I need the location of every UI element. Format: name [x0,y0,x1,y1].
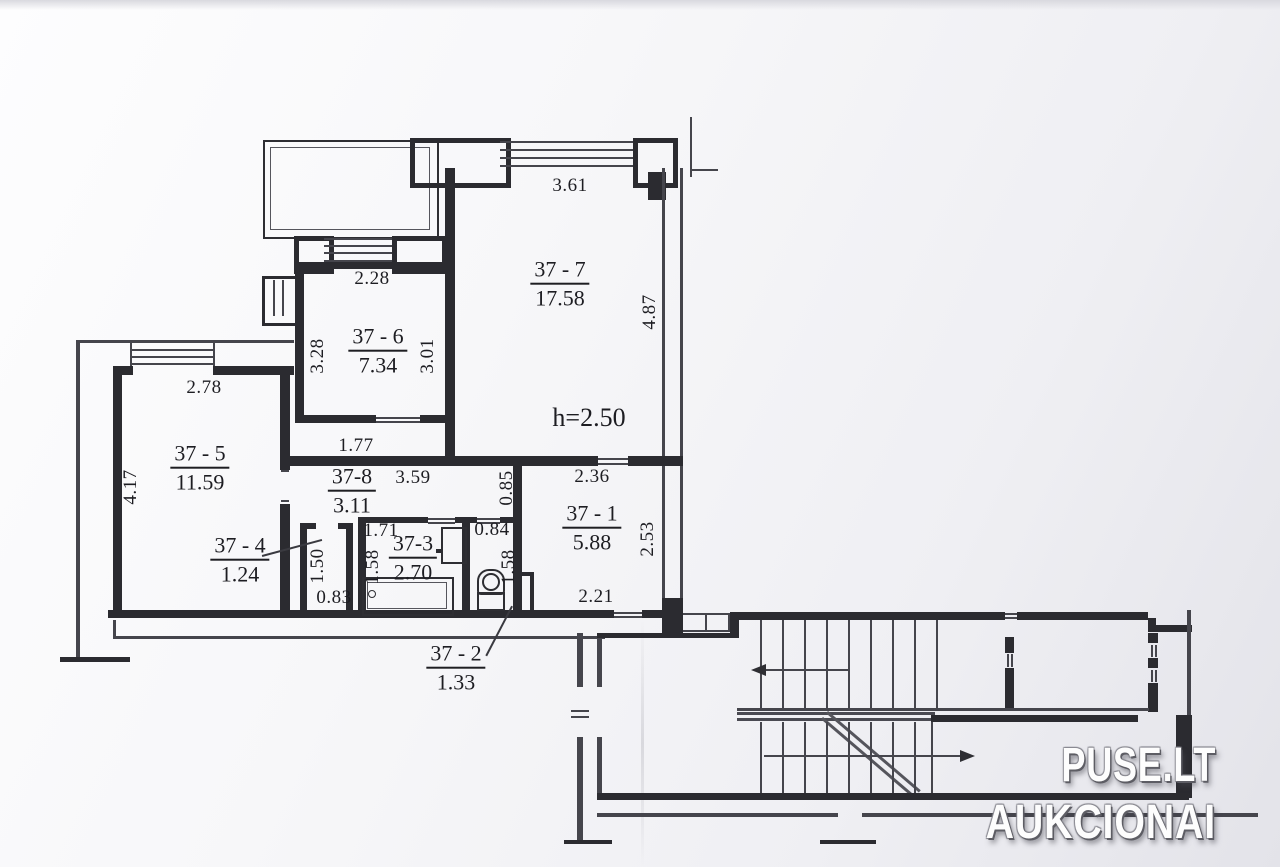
window-lines [324,245,392,247]
landing-divider [1005,637,1014,653]
room-label-37-2: 37 - 2 1.33 [426,641,485,696]
room1-notch [530,572,534,612]
room-id: 37 - 5 [170,441,229,469]
dim-label: 1.77 [338,435,373,457]
stair-tread [936,620,938,709]
dim-label: 4.87 [639,294,661,329]
room-area: 1.33 [426,669,485,695]
room-label-37-8: 37-8 3.11 [328,464,376,519]
stair-top-wall [735,612,1005,620]
flight-divider-line [737,708,1149,711]
stair-tread [804,620,806,709]
room-label-37-1: 37 - 1 5.88 [562,501,621,556]
watermark-line1: PUSE.LT [1061,742,1216,790]
door-opening-lines [428,522,455,524]
toilet-tank [477,592,505,611]
window-lines [1011,654,1013,667]
divider-wall [1148,633,1158,643]
door-opening-lines [376,417,420,419]
door-opening-lines [1005,617,1017,619]
wall-foot [564,840,612,844]
opening-lines [614,612,642,614]
stair-tread [892,620,894,709]
stair-tread [848,620,850,709]
stair-tread [804,722,806,793]
vent-shaft-line [273,280,275,316]
stair-tread [826,722,828,793]
dim-label: 0.84 [474,519,509,541]
entrance-jamb [728,613,730,632]
wall-step [1148,625,1192,632]
stair-break-line [821,717,916,799]
landing-divider [1005,668,1014,708]
room-id: 37 - 2 [426,641,485,669]
window-lines [500,149,633,151]
room-label-37-4: 37 - 4 1.24 [210,533,269,588]
stair-tread [892,722,894,793]
bathtub-inner [367,582,447,609]
door-opening-lines [598,463,628,465]
closet-top-wall [300,523,316,529]
window-lines [1151,670,1153,682]
room-area: 5.88 [562,529,621,555]
dim-label: 1.58 [498,549,520,584]
room7-left-wall [445,168,455,465]
room-area: 3.11 [328,492,376,518]
room-area: 2.70 [389,559,437,585]
window-lines [500,141,633,143]
room1-notch [520,572,532,576]
door-opening-lines [1005,613,1017,615]
lower-lobby-top-wall [931,715,1138,722]
stair-up-arrow-icon [751,664,766,676]
outer-bottom-wall [597,813,838,817]
dim-label: 4.17 [120,469,142,504]
stair-down-arrow-icon [960,750,975,762]
door-opening-lines [376,421,420,423]
stair-tread [848,722,850,793]
window-lines [571,716,589,718]
corridor-top-wall [628,456,683,466]
stair-tread [826,620,828,709]
dim-label: 1.58 [362,549,384,584]
outer-wall-top-line [78,340,294,343]
wall-jog [113,620,116,637]
window-lines [500,157,633,159]
dim-label: 2.28 [354,268,389,290]
door-jamb [281,470,289,472]
room-id: 37 - 4 [210,533,269,561]
paper-crease [641,620,644,867]
room6-bottom-wall [295,415,376,423]
stair-tread [782,620,784,709]
divider-wall [1148,658,1158,668]
stair-arrow-line [764,669,848,671]
stair-top-wall [1017,612,1148,620]
right-double-wall [662,168,665,600]
stair-tread [870,722,872,793]
scan-shade [0,0,1280,10]
room-label-37-5: 37 - 5 11.59 [170,441,229,496]
window-jamb [213,342,215,369]
stair-tread [782,722,784,793]
door-opening-lines [428,518,455,520]
wall-foot [60,657,130,662]
window-lines [1151,645,1153,657]
dim-label: 2.78 [186,377,221,399]
dim-label: 1.71 [363,520,398,542]
stair-arrow-line [764,755,964,757]
room-id: 37-8 [328,464,376,492]
dim-label: 3.01 [417,338,439,373]
stair-left-outer-wall [577,737,583,842]
stair-left-inner-wall [597,737,602,800]
entrance-jamb [705,613,707,632]
dim-label: 0.83 [316,587,351,609]
right-double-wall [680,168,683,600]
dim-label: 3.59 [395,467,430,489]
door-opening-lines [598,458,628,460]
window-lines [324,238,392,240]
stair-rail [737,712,935,715]
room-area: 1.24 [210,561,269,587]
window-pier [410,138,511,188]
sink [441,527,467,564]
room5-right-wall [280,366,290,470]
window-lines [1007,654,1009,667]
stair-tread [931,722,933,793]
window-lines [132,356,213,358]
wall-block [662,598,683,636]
outer-wall-left [76,340,80,660]
outer-lower-line [113,636,605,639]
stair-tread [760,722,762,793]
right-outer-wall [1187,610,1191,717]
dim-label: 3.28 [307,338,329,373]
stair-break-line [826,711,921,793]
room-label-37-6: 37 - 6 7.34 [348,324,407,379]
room-area: 7.34 [348,352,407,378]
room-id: 37 - 1 [562,501,621,529]
closet-left-wall [300,523,307,618]
watermark-line2: AUKCIONAI [986,799,1216,847]
room-area: 17.58 [530,285,589,311]
room-id: 37 - 7 [530,257,589,285]
wall-end-tick [690,117,692,177]
balcony-inner-line [270,147,430,230]
stair-tread [914,722,916,793]
floor-plan-scan: 37 - 7 17.58 37 - 6 7.34 37 - 5 11.59 37… [0,0,1280,867]
stair-tread [914,620,916,709]
closet-top-wall [338,523,353,529]
dim-label: 2.21 [578,586,613,608]
room-id: 37 - 6 [348,324,407,352]
opening-lines [614,616,642,618]
divider-wall [1148,683,1158,712]
wall-end-tick [692,169,718,171]
door-jamb [281,500,289,502]
dim-label: 2.53 [637,521,659,556]
window-lines [1155,645,1157,657]
room-label-37-7: 37 - 7 17.58 [530,257,589,312]
bathtub-drain [368,590,376,598]
dim-label: 2.36 [574,466,609,488]
window-lines [571,710,589,712]
stair-left-inner-wall [597,638,602,687]
room-area: 11.59 [170,469,229,495]
stair-left-outer-wall [577,633,583,687]
vent-shaft-line [282,280,284,316]
dim-label: 0.85 [496,470,518,505]
dim-label: 1.50 [307,548,329,583]
dim-label: 3.61 [552,175,587,197]
window-lines [1155,670,1157,682]
window-lines [324,252,392,254]
wall-foot [820,840,876,844]
ceiling-height-note: h=2.50 [552,403,625,433]
window-lines [132,363,213,365]
stair-tread [870,620,872,709]
lobby-top-wall [597,633,737,638]
window-lines [132,349,213,351]
window-lines [500,165,633,167]
room5-right-wall [280,504,290,618]
